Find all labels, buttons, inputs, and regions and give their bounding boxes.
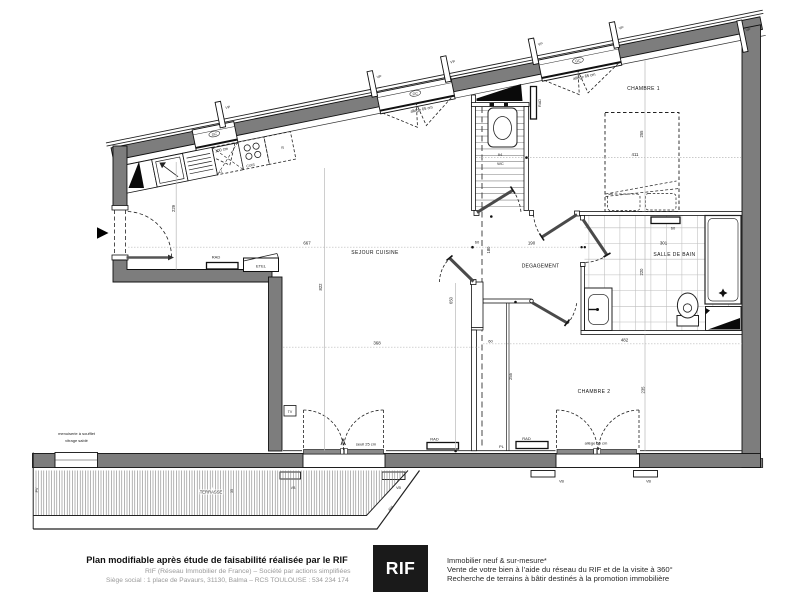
- svg-text:DEGAGEMENT: DEGAGEMENT: [522, 264, 560, 270]
- svg-text:255: 255: [508, 372, 513, 380]
- svg-text:WC: WC: [497, 161, 504, 166]
- svg-text:482: 482: [621, 338, 629, 343]
- svg-text:VP: VP: [450, 59, 456, 64]
- svg-text:PL: PL: [499, 444, 505, 449]
- svg-text:VP: VP: [225, 105, 231, 110]
- svg-text:229: 229: [171, 204, 176, 212]
- svg-text:VB: VB: [559, 480, 564, 484]
- svg-text:368: 368: [373, 341, 381, 346]
- svg-text:VB: VB: [646, 480, 651, 484]
- svg-text:LL: LL: [219, 169, 224, 174]
- svg-text:CHAMBRE 2: CHAMBRE 2: [578, 389, 611, 395]
- svg-text:255: 255: [639, 130, 644, 138]
- svg-text:CHAMBRE 1: CHAMBRE 1: [627, 86, 660, 92]
- svg-text:VP: VP: [376, 74, 382, 79]
- svg-text:SEJOUR CUISINE: SEJOUR CUISINE: [351, 250, 399, 256]
- svg-text:TV: TV: [288, 410, 293, 414]
- svg-text:667: 667: [303, 241, 311, 246]
- svg-text:PV: PV: [35, 487, 39, 492]
- svg-text:190: 190: [528, 241, 536, 246]
- svg-text:411: 411: [632, 152, 640, 157]
- svg-text:180: 180: [486, 246, 491, 254]
- svg-text:VP: VP: [619, 25, 625, 30]
- svg-text:301: 301: [660, 241, 668, 246]
- svg-text:60: 60: [671, 226, 676, 231]
- svg-text:CUIS: CUIS: [246, 163, 256, 169]
- svg-text:vitrage sablé: vitrage sablé: [65, 438, 88, 443]
- svg-text:650: 650: [449, 296, 454, 304]
- svg-text:TERRASSE: TERRASSE: [200, 490, 223, 495]
- svg-text:60: 60: [475, 240, 480, 245]
- svg-text:R: R: [281, 146, 285, 151]
- svg-text:RAD: RAD: [522, 436, 531, 441]
- svg-text:VB: VB: [396, 486, 401, 490]
- svg-text:235: 235: [641, 386, 646, 394]
- svg-text:ETEL: ETEL: [256, 264, 267, 269]
- svg-text:seuil 25 cm: seuil 25 cm: [356, 442, 377, 447]
- svg-text:220: 220: [639, 268, 644, 276]
- svg-text:VP: VP: [538, 42, 544, 47]
- svg-text:35: 35: [230, 489, 234, 493]
- svg-text:RAD: RAD: [538, 99, 542, 107]
- svg-text:822: 822: [318, 283, 323, 291]
- svg-text:94: 94: [498, 152, 503, 157]
- svg-text:SALLE DE BAIN: SALLE DE BAIN: [653, 252, 695, 258]
- svg-text:60: 60: [488, 339, 493, 344]
- svg-text:RAD: RAD: [430, 437, 439, 442]
- svg-text:menuiserie à soufflet: menuiserie à soufflet: [58, 431, 96, 436]
- svg-text:RAD: RAD: [212, 255, 221, 260]
- svg-text:allège 65 cm: allège 65 cm: [585, 441, 608, 446]
